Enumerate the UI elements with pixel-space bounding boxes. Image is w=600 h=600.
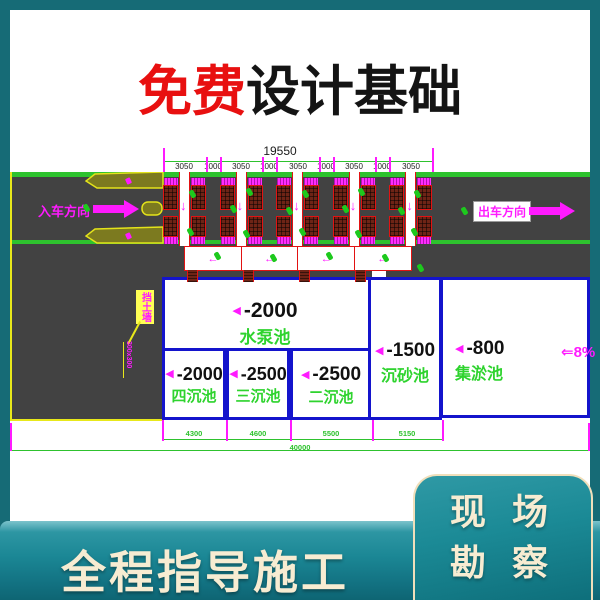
dim-tick [389, 157, 391, 172]
dim-tick [162, 420, 164, 441]
dim-tick [262, 157, 264, 172]
wash-bay: ↓ [333, 178, 376, 244]
wash-bay: ↓ [220, 178, 263, 244]
pool-depth: -800 [466, 338, 504, 360]
drain-channel: ← [241, 246, 299, 271]
pool-depth: -2000 [177, 364, 223, 385]
dim-tick [588, 423, 590, 451]
pool-fourth: ◀-2000 四沉池 [162, 348, 226, 420]
poster: 免费设计基础 入车方向 出车方向 ↓ ◀-2000 水泵池 ◀-2000 四沉池 [0, 0, 600, 600]
pool-name: 水泵池 [180, 323, 350, 348]
dim-tick [319, 157, 321, 172]
drain-channel: ← [297, 246, 355, 271]
headline-rest: 设计基础 [246, 62, 462, 122]
callout-note: 300x300 [125, 341, 132, 368]
bottom-banner-label: 全程指导施工 [30, 536, 380, 600]
exit-direction-label: 出车方向 [473, 201, 531, 222]
boundary-line-bottom [10, 419, 163, 421]
exit-arrow-icon [529, 202, 575, 220]
depth-marker-icon: ◀ [455, 344, 463, 355]
pool-depth: -1500 [386, 340, 435, 362]
dim-tick [163, 148, 165, 172]
pool-depth: -2500 [312, 364, 361, 386]
wash-bay: ↓ [276, 178, 319, 244]
boundary-line-left [10, 172, 12, 421]
pool-name: 三沉池 [229, 385, 287, 406]
badge-line1: 现 场 [450, 486, 556, 537]
dim-tick [333, 157, 335, 172]
dim-seg: 5150 [387, 429, 427, 438]
dim-seg: 1000 [198, 162, 228, 171]
dim-seg: 3050 [283, 162, 313, 171]
depth-marker-icon: ◀ [301, 370, 309, 381]
dim-seg: 3050 [226, 162, 256, 171]
dim-seg: 5500 [311, 429, 351, 438]
dim-seg: 4600 [238, 429, 278, 438]
depth-marker-icon: ◀ [375, 346, 383, 357]
wash-bay: ↓ [389, 178, 432, 244]
dim-total-bottom: 40000 [270, 443, 330, 452]
badge-line2: 勘 察 [450, 537, 556, 588]
drain-stub [355, 270, 366, 282]
slope-label: ⇐8% [561, 343, 595, 361]
pool-name: 四沉池 [165, 385, 223, 406]
pool-third: ◀-2500 三沉池 [226, 348, 290, 420]
pool-silt: ◀-800 集淤池 ⇐8% [440, 277, 590, 418]
depth-marker-icon: ◀ [232, 306, 240, 317]
pool-depth: -2000 [244, 299, 298, 323]
dim-tick [10, 423, 12, 451]
pool-pump: ◀-2000 水泵池 [162, 277, 372, 352]
wash-bay: ↓ [163, 178, 206, 244]
dim-tick [442, 420, 444, 441]
dim-tick [226, 420, 228, 441]
dim-seg: 3050 [339, 162, 369, 171]
dim-tick [290, 420, 292, 441]
dim-seg: 1000 [254, 162, 284, 171]
dim-tick [372, 420, 374, 441]
dim-seg: 1000 [311, 162, 341, 171]
dim-line-bottom [162, 439, 442, 440]
drain-stub [187, 270, 198, 282]
pool-depth: -2500 [241, 364, 287, 385]
corner-badge: 现 场 勘 察 [413, 474, 593, 600]
dim-seg: 3050 [396, 162, 426, 171]
dim-total-top: 19550 [190, 144, 370, 158]
callout-label: 挡土墙 [138, 292, 153, 322]
entry-direction-label: 入车方向 [38, 201, 90, 220]
pool-second: ◀-2500 二沉池 [290, 348, 372, 420]
headline-highlight: 免费 [138, 62, 246, 122]
drain-stub [243, 270, 254, 282]
dim-tick [375, 157, 377, 172]
dim-tick [220, 157, 222, 172]
callout-box: 挡土墙 [136, 290, 154, 324]
pool-name: 沉砂池 [371, 362, 439, 386]
headline: 免费设计基础 [10, 62, 590, 122]
dim-tick [276, 157, 278, 172]
pool-grit: ◀-1500 沉砂池 [368, 277, 442, 420]
drain-channel: ← [184, 246, 242, 271]
dim-tick [432, 148, 434, 172]
depth-marker-icon: ◀ [229, 369, 237, 380]
dim-seg: 4300 [174, 429, 214, 438]
pool-name: 二沉池 [293, 386, 369, 407]
dim-seg: 3050 [169, 162, 199, 171]
dim-seg: 1000 [367, 162, 397, 171]
depth-marker-icon: ◀ [165, 369, 173, 380]
callout-note-line [123, 342, 124, 378]
dim-tick [206, 157, 208, 172]
drain-stub [299, 270, 310, 282]
pool-name: 集淤池 [455, 360, 565, 384]
entry-arrow-icon [93, 200, 139, 218]
